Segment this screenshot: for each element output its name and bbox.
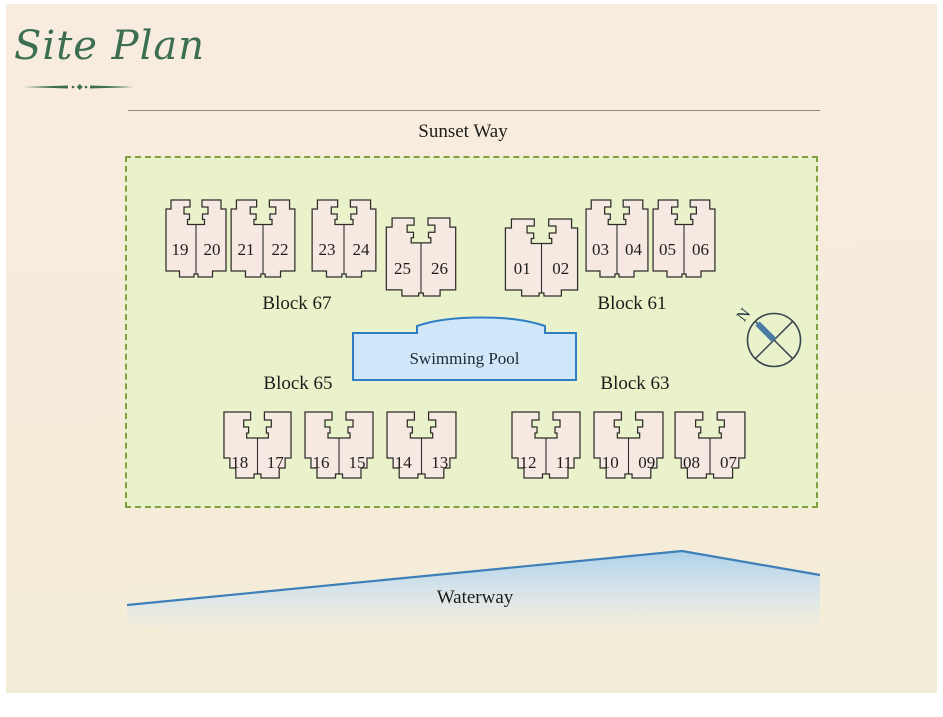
building-18-17: 18 17 [222,410,293,488]
building-footprint [651,197,717,279]
building-01-02: 01 02 [503,216,580,298]
unit-label: 15 [339,454,375,471]
unit-label: 20 [196,241,228,258]
building-footprint [584,197,650,279]
unit-label: 08 [673,454,710,471]
unit-label: 22 [263,241,297,258]
building-footprint [164,197,228,279]
building-19-20: 19 20 [164,197,228,279]
building-03-04: 03 04 [584,197,650,279]
building-08-07: 08 07 [673,410,747,488]
unit-label: 26 [421,260,458,277]
building-21-22: 21 22 [229,197,297,279]
unit-label: 07 [710,454,747,471]
unit-label: 25 [384,260,421,277]
block-label-67: Block 67 [227,293,367,315]
unit-label: 04 [617,241,650,258]
building-05-06: 05 06 [651,197,717,279]
building-footprint [592,410,665,488]
waterway-label: Waterway [395,587,555,609]
building-12-11: 12 11 [510,410,582,488]
unit-label: 19 [164,241,196,258]
building-footprint [673,410,747,488]
swimming-pool: Swimming Pool [352,314,577,381]
sunset-way-label: Sunset Way [383,121,543,143]
building-footprint [384,215,458,298]
building-footprint [503,216,580,298]
swimming-pool-label: Swimming Pool [352,336,577,381]
block-label-65: Block 65 [228,373,368,395]
unit-label: 06 [684,241,717,258]
unit-label: 11 [546,454,582,471]
unit-label: 05 [651,241,684,258]
compass-north-label: N [734,305,755,325]
building-25-26: 25 26 [384,215,458,298]
page-title: Site Plan [14,24,205,68]
sunset-way-road-line [128,110,820,111]
unit-label: 10 [592,454,629,471]
building-14-13: 14 13 [385,410,458,488]
unit-label: 16 [303,454,339,471]
unit-label: 02 [542,260,581,277]
compass-icon: N [734,300,814,380]
building-footprint [222,410,293,488]
building-16-15: 16 15 [303,410,375,488]
site-plan-page: Site Plan Sunset Way 19 20 21 22 23 24 2… [0,0,943,717]
building-footprint [385,410,458,488]
building-footprint [303,410,375,488]
building-footprint [510,410,582,488]
unit-label: 18 [222,454,258,471]
unit-label: 01 [503,260,542,277]
unit-label: 13 [422,454,459,471]
title-ornament-icon [24,82,134,92]
building-23-24: 23 24 [310,197,378,279]
unit-label: 09 [629,454,666,471]
building-footprint [310,197,378,279]
building-10-09: 10 09 [592,410,665,488]
unit-label: 03 [584,241,617,258]
unit-label: 14 [385,454,422,471]
building-footprint [229,197,297,279]
unit-label: 24 [344,241,378,258]
unit-label: 23 [310,241,344,258]
unit-label: 12 [510,454,546,471]
block-label-61: Block 61 [562,293,702,315]
block-label-63: Block 63 [565,373,705,395]
unit-label: 21 [229,241,263,258]
unit-label: 17 [258,454,294,471]
